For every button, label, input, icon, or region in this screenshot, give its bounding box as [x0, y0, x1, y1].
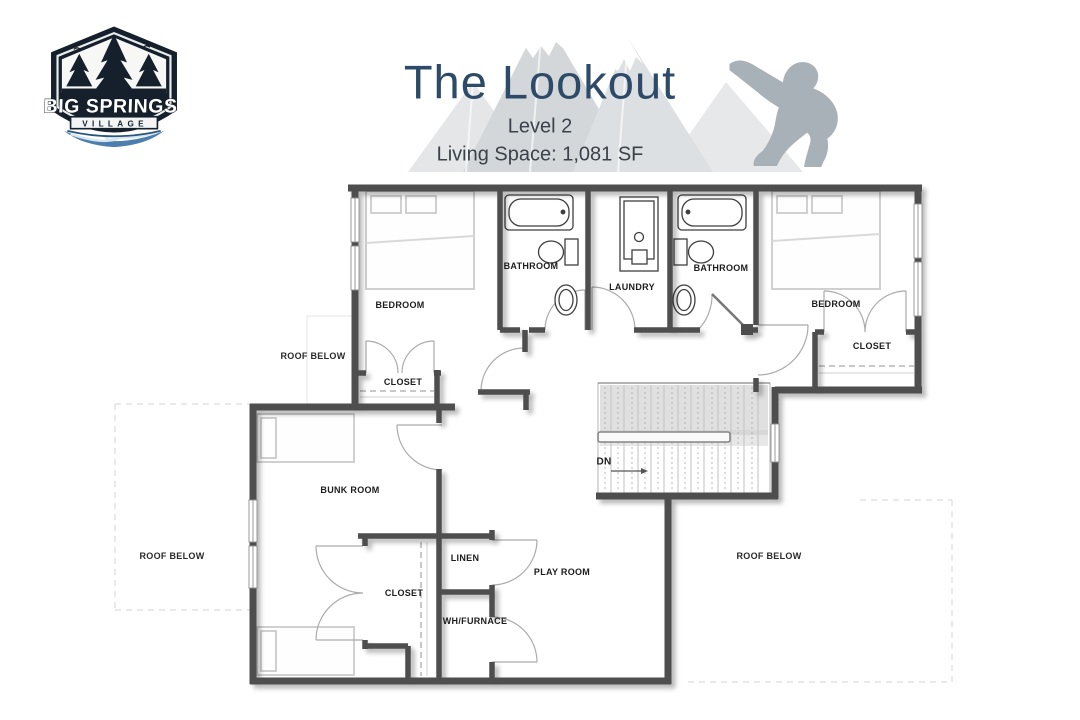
room-label-linen: LINEN [451, 553, 480, 563]
room-label-roof-below-upper-left: ROOF BELOW [281, 351, 346, 361]
room-label-bunk-room: BUNK ROOM [320, 485, 379, 495]
big-springs-village-logo: BIG SPRINGS VILLAGE [38, 8, 190, 156]
staircase [598, 383, 770, 496]
river-icon [64, 131, 164, 147]
logo-primary-text: BIG SPRINGS [43, 95, 178, 117]
room-label-laundry: LAUNDRY [609, 282, 655, 292]
door-hinge-block [741, 324, 753, 335]
room-label-bedroom-left: BEDROOM [375, 300, 424, 310]
living-space-subtitle: Living Space: 1,081 SF [437, 144, 644, 167]
toilet-left [565, 239, 578, 265]
logo-secondary-text: VILLAGE [82, 120, 148, 129]
room-label-roof-below-left: ROOF BELOW [140, 551, 205, 561]
room-label-bathroom-left: BATHROOM [504, 261, 559, 271]
room-label-closet-bedroom-right: CLOSET [853, 341, 891, 351]
fixtures [505, 195, 746, 315]
toilet-right [674, 239, 687, 265]
room-label-play-room: PLAY ROOM [534, 567, 590, 577]
stairs-down-label: DN [596, 457, 611, 468]
room-label-bathroom-right: BATHROOM [694, 263, 749, 273]
page-title: The Lookout [404, 55, 676, 110]
floorplan-sheet: BIG SPRINGS VILLAGE The Lookout Level 2 … [0, 0, 1080, 720]
room-label-roof-below-right: ROOF BELOW [737, 551, 802, 561]
room-label-closet-hall: CLOSET [384, 377, 422, 387]
level-subtitle: Level 2 [508, 116, 573, 139]
roof-outline-dashes [115, 404, 952, 682]
room-label-closet-bunk: CLOSET [385, 588, 423, 598]
stair-handrail [598, 432, 730, 442]
room-label-bedroom-right: BEDROOM [811, 299, 860, 309]
room-label-wh-furnace: WH/FURNACE [443, 616, 508, 626]
